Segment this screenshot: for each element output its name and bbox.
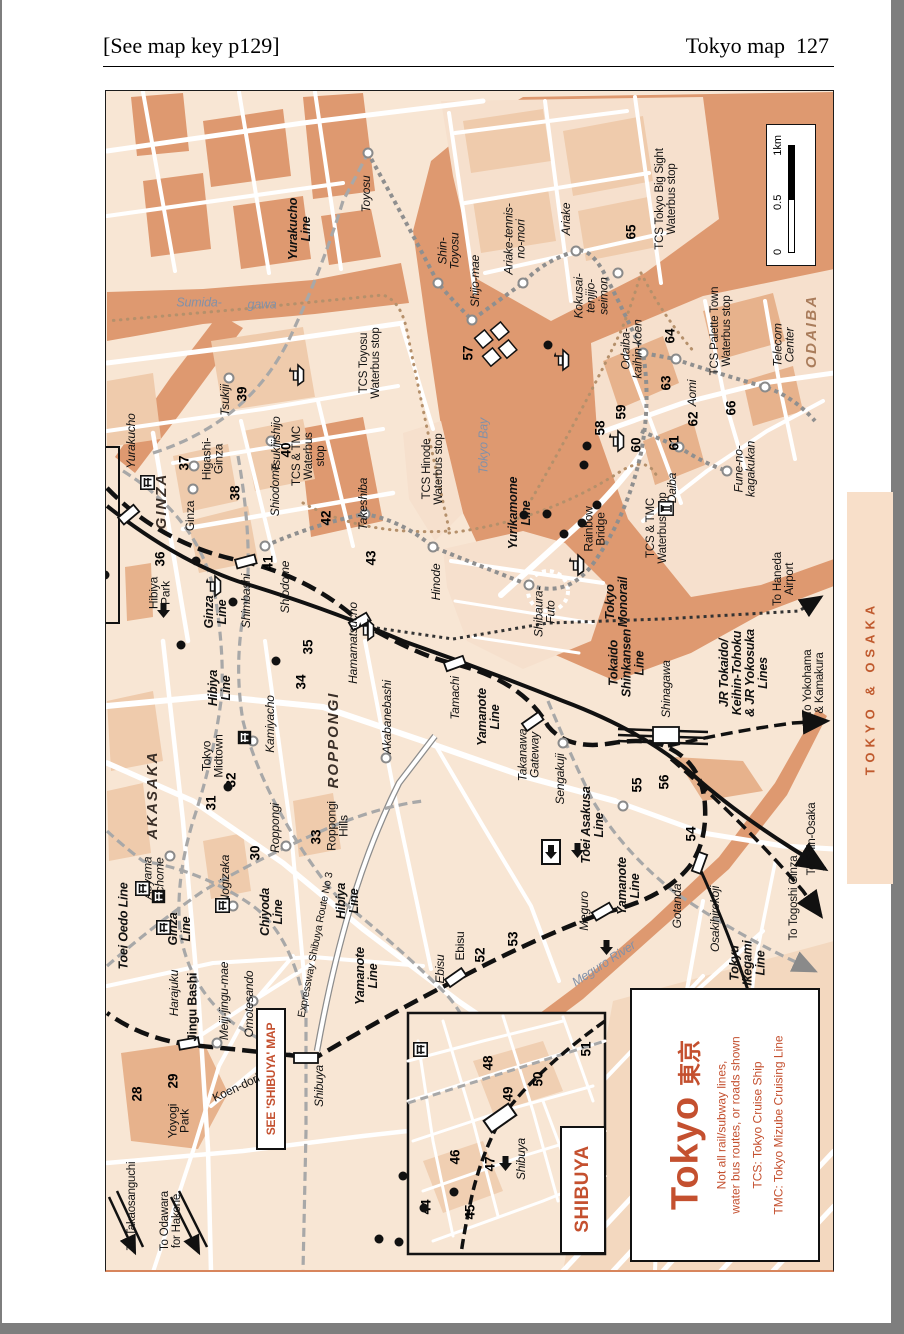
chapter-tab-label: TOKYO & OSAKA [863, 601, 878, 776]
legend-tmc: TMC: Tokyo Mizube Cruising Line [771, 999, 785, 1251]
scale-bar: 0 0.5 1km [766, 124, 816, 266]
page-number: 127 [796, 33, 829, 58]
scale-half: 0.5 [772, 195, 784, 210]
legend-title-row: Tokyo東京 [665, 999, 708, 1251]
scale-one-km: 1km [772, 135, 784, 156]
legend-title: Tokyo [665, 1096, 707, 1210]
map-legend: Tokyo東京 Not all rail/subway lines, water… [630, 988, 820, 1262]
legend-note: Not all rail/subway lines, water bus rou… [716, 999, 744, 1251]
page-title: Tokyo map 127 [686, 33, 829, 59]
book-page: [See map key p129] Tokyo map 127 [2, 0, 891, 1323]
map-key-reference: [See map key p129] [103, 33, 280, 59]
legend-title-japanese: 東京 [677, 1040, 703, 1086]
page-title-text: Tokyo map [686, 33, 785, 58]
legend-tcs: TCS: Tokyo Cruise Ship [750, 999, 764, 1251]
scale-bar-graphic [788, 145, 795, 253]
chapter-thumb-tab: TOKYO & OSAKA [847, 492, 893, 884]
scale-zero: 0 [772, 249, 784, 255]
header-divider [103, 66, 834, 67]
